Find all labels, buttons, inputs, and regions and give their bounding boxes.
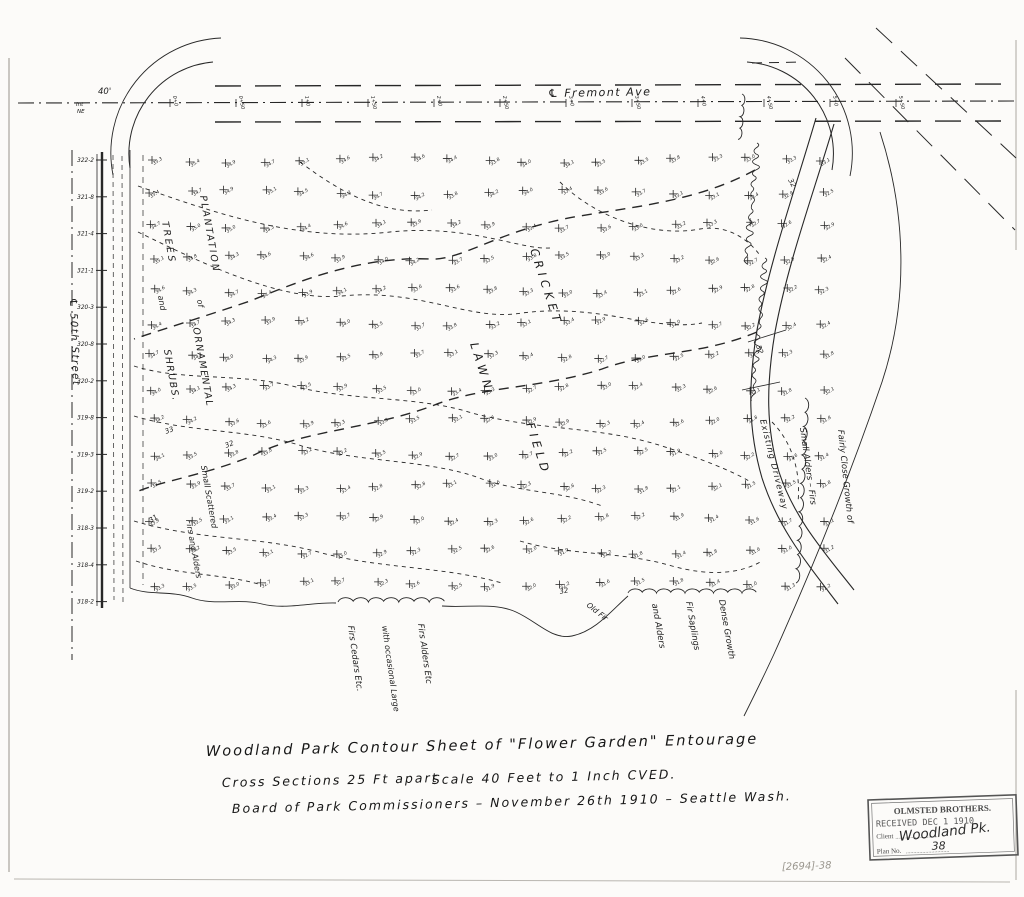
elevation-figure: 32.9 — [377, 549, 389, 560]
elevation-figure: 33.5 — [226, 546, 238, 557]
elevation-figure: 33.9 — [485, 221, 497, 232]
elevation-figure: 32.5 — [823, 188, 835, 199]
elevation-figure: 34.2 — [376, 285, 388, 296]
corner-note-int: Int — [76, 102, 84, 108]
driveway-edge-west — [751, 118, 838, 604]
elevation-figure: 32.8 — [415, 481, 427, 492]
contour-label-33: 33 — [164, 425, 175, 436]
elevation-figure: 33.0 — [411, 387, 423, 398]
elevation-figure: 33.7 — [452, 256, 464, 267]
section-label: 318-4 — [77, 563, 94, 569]
elevation-figure: 34.7 — [229, 289, 241, 300]
elevation-figure: 31.8 — [820, 479, 832, 490]
fremont-ave: ℄ Fremont Ave 40' Int NE — [18, 62, 1015, 122]
elevation-figure: 34.2 — [451, 219, 463, 230]
elevation-figure: 34.1 — [376, 219, 388, 230]
elevation-figure: 34.2 — [415, 192, 427, 203]
station-label: 3+0 — [567, 95, 575, 106]
elevation-figure: 31.8 — [781, 387, 793, 398]
elevation-figure: 33.5 — [409, 415, 421, 426]
elevation-figure: 33.0 — [337, 550, 349, 561]
elevation-figure: 34.6 — [337, 221, 349, 232]
elevation-figure: 32.0 — [709, 416, 721, 427]
elevation-figure: 32.7 — [449, 452, 461, 463]
elevation-figure: 32.4 — [786, 322, 798, 333]
elevation-figure: 32.2 — [635, 512, 647, 523]
station-label: 3+50 — [633, 95, 641, 110]
elevation-figure: 32.5 — [638, 446, 650, 457]
elevation-figure: 33.2 — [337, 447, 349, 458]
elevation-figure: 32.4 — [634, 420, 646, 431]
elevation-figure: 34.6 — [340, 155, 352, 166]
contour-heavy-31 — [134, 332, 757, 493]
fremont-south-edge — [215, 121, 1002, 122]
elevation-figure: 32.0 — [527, 545, 539, 556]
elevation-figure: 34.9 — [223, 186, 235, 197]
elevation-figure: 35.4 — [149, 189, 161, 200]
elevation-figure: 35.0 — [225, 224, 237, 235]
elevation-figure: 35.0 — [190, 222, 202, 233]
elevation-figure: 34.3 — [266, 355, 278, 366]
elevation-figure: 33.3 — [712, 153, 724, 164]
map-drawing: ℄ Fremont Ave 40' Int NE ℄ 50th Street 3… — [0, 0, 1024, 897]
elevation-figure: 32.9 — [595, 316, 607, 327]
elevation-figure: 32.0 — [526, 582, 538, 593]
elevation-figure: 33.5 — [151, 479, 163, 490]
elevation-figure: 32.7 — [301, 550, 313, 561]
elevation-figure: 33.4 — [526, 223, 538, 234]
section-label: 319-3 — [77, 452, 94, 458]
corner-arc-nw-outer — [111, 38, 221, 175]
existing-driveway — [742, 118, 854, 604]
label-old-fir: Old Fir — [585, 600, 611, 623]
elevation-figure: 33.3 — [298, 485, 310, 496]
label-existing-driveway: Existing Driveway — [757, 418, 789, 511]
corner-arc-ne-outer — [740, 38, 852, 176]
elevation-figure: 33.7 — [635, 188, 647, 199]
elevation-figure: 33.7 — [559, 224, 571, 235]
label-of: of — [195, 299, 205, 309]
elevation-figure: 32.3 — [676, 383, 688, 394]
elevation-figure: 31.8 — [638, 485, 650, 496]
label-plantation: PLANTATION — [197, 195, 221, 274]
elevation-figure: 33.6 — [229, 418, 241, 429]
elevation-figure: 33.2 — [490, 321, 502, 332]
elevation-figure: 33.3 — [786, 155, 798, 166]
elevation-figure: 33.6 — [412, 284, 424, 295]
elevation-figure: 33.0 — [635, 354, 647, 365]
elevation-figure: 32.8 — [372, 483, 384, 494]
elevation-figure: 32.9 — [712, 284, 724, 295]
elevation-figure: 35.1 — [154, 255, 166, 266]
elevation-figure: 33.5 — [376, 449, 388, 460]
section-label: 320-3 — [77, 305, 94, 311]
elevation-figure: 33.4 — [523, 352, 535, 363]
elevation-figure: 33.1 — [521, 319, 533, 330]
elevation-figure: 33.4 — [597, 289, 609, 300]
elevation-figure: 33.1 — [223, 515, 235, 526]
section-label: 321-4 — [77, 232, 94, 238]
ne-diagonal-dash-2 — [876, 28, 1016, 158]
elevation-figure: 31.8 — [673, 577, 685, 588]
elevation-figure: 31.5 — [745, 480, 757, 491]
elevation-figure: 31.8 — [599, 513, 611, 524]
label-and-alders: and Alders — [649, 603, 667, 650]
elevation-figure: 31.3 — [785, 582, 797, 593]
elevation-figure: 33.3 — [634, 252, 646, 263]
elevation-figure: 34.0 — [523, 187, 535, 198]
elevation-figure: 33.7 — [414, 349, 426, 360]
fremont-centerline — [18, 101, 1014, 103]
elevation-figure: 32.6 — [709, 256, 721, 267]
elevation-figure: 33.0 — [633, 222, 645, 233]
section-label: 319-8 — [77, 416, 94, 422]
section-label: 322-2 — [77, 158, 94, 164]
elevation-figure: 34.3 — [186, 287, 198, 298]
elevation-figure: 32.6 — [523, 517, 535, 528]
elevation-figure: 34.0 — [151, 387, 163, 398]
elevation-figure: 32.7 — [260, 579, 272, 590]
elevation-figure: 32.2 — [787, 284, 799, 295]
elevation-figure: 33.6 — [261, 419, 273, 430]
elevation-figure: 33.5 — [638, 156, 650, 167]
sheet-edge-bottom — [14, 879, 1010, 882]
elevation-figure: 33.3 — [488, 350, 500, 361]
elevation-figure: 33.5 — [186, 583, 198, 594]
elevation-figure: 32.1 — [670, 484, 682, 495]
elevation-figure: 33.3 — [154, 583, 166, 594]
elevation-figure: 34.2 — [154, 414, 166, 425]
station-label: 5+50 — [897, 95, 905, 110]
elevation-figure: 34.0 — [378, 256, 390, 267]
stamp-org: OLMSTED BROTHERS. — [894, 803, 992, 816]
elevation-figure: 32.3 — [600, 420, 612, 431]
elevation-figure: 32.9 — [559, 418, 571, 429]
elevation-figure: 33.1 — [378, 417, 390, 428]
elevation-figure: 33.8 — [262, 447, 274, 458]
contour-number-labels: 33 32 31 32 32 32 — [148, 177, 798, 596]
elevation-figure: 31.8 — [824, 350, 836, 361]
elevation-figure: 32.7 — [712, 321, 724, 332]
elevation-figure: 32.7 — [335, 577, 347, 588]
elevation-figure: 33.2 — [674, 254, 686, 265]
elevation-figure: 34.0 — [521, 158, 533, 169]
elevation-figure: 34.3 — [225, 317, 237, 328]
elevation-figure: 32.1 — [712, 482, 724, 493]
elevation-figure: 32.3 — [595, 484, 607, 495]
map-title: Woodland Park Contour Sheet of "Flower G… — [206, 731, 759, 760]
tree-line-scallop — [738, 94, 745, 140]
elevation-figure: 32.7 — [340, 512, 352, 523]
elevation-figure: 32.2 — [785, 414, 797, 425]
elevation-figure: 34.0 — [223, 353, 235, 364]
elevation-figure: 32.3 — [818, 286, 830, 297]
elevation-figure: 32.6 — [674, 418, 686, 429]
elevation-figure: 33.1 — [263, 549, 275, 560]
elevation-figure: 32.9 — [824, 221, 836, 232]
elevation-figure: 33.3 — [335, 419, 347, 430]
elevation-figure: 33.1 — [452, 414, 464, 425]
elevation-figure: 32.5 — [673, 352, 685, 363]
cross-sections-note: Cross Sections 25 Ft apart — [222, 770, 439, 790]
elevation-figure: 33.3 — [707, 219, 719, 230]
elevation-figure: 32.8 — [744, 283, 756, 294]
elevation-figure: 31.4 — [818, 452, 830, 463]
elevation-figure: 33.1 — [265, 484, 277, 495]
elevation-figure: 35.4 — [189, 158, 201, 169]
elevation-figure: 33.0 — [670, 319, 682, 330]
station-label: 2+0 — [435, 95, 443, 106]
elevation-figure: 33.5 — [187, 451, 199, 462]
elevation-figure: 31.6 — [787, 452, 799, 463]
width-40-label: 40' — [98, 87, 111, 97]
elevation-figure: 31.9 — [674, 512, 686, 523]
elevation-figure: 31.0 — [782, 545, 794, 556]
contour — [560, 182, 759, 254]
label-small-alders-firs: Small Alders – Firs — [797, 427, 818, 506]
section-label: 318-3 — [77, 526, 94, 532]
elevation-figure: 34.1 — [190, 385, 202, 396]
elevation-figure: 34.8 — [187, 253, 199, 264]
elevation-figure: 33.2 — [676, 220, 688, 231]
elevation-figure: 32.5 — [452, 545, 464, 556]
walk-edge-2 — [122, 156, 123, 602]
elevation-figure: 32.8 — [562, 354, 574, 365]
elevation-figure: 33.8 — [228, 449, 240, 460]
elevation-figure: 34.5 — [298, 187, 310, 198]
elevation-figure: 34.0 — [340, 318, 352, 329]
elevation-figure: 33.1 — [304, 577, 316, 588]
elevation-figure: 33.5 — [373, 320, 385, 331]
title-block: Woodland Park Contour Sheet of "Flower G… — [206, 731, 792, 816]
elevation-figure: 33.9 — [302, 289, 314, 300]
corner-curb-arcs — [111, 28, 1016, 230]
elevation-figure: 33.1 — [673, 190, 685, 201]
elevation-figure: 32.6 — [707, 385, 719, 396]
elevation-figure: 32.6 — [670, 286, 682, 297]
elevation-figure: 34.7 — [149, 349, 161, 360]
elevation-figure: 33.7 — [263, 381, 275, 392]
elevation-figure: 32.7 — [526, 385, 538, 396]
elevation-figure: 33.9 — [298, 354, 310, 365]
elevation-figure: 32.8 — [558, 383, 570, 394]
elevation-figure: 33.0 — [414, 516, 426, 527]
label-dense-growth: Dense Growth — [716, 599, 736, 660]
elevation-figure: 32.6 — [638, 317, 650, 328]
elevation-figure: 34.1 — [154, 452, 166, 463]
elevation-figure: 32.6 — [484, 544, 496, 555]
elevation-figure: 31.4 — [710, 578, 722, 589]
elevation-figure: 33.8 — [487, 285, 499, 296]
elevation-figure: 31.6 — [600, 578, 612, 589]
elevation-figure: 33.0 — [600, 251, 612, 262]
contour-label-32a: 32 — [224, 439, 236, 450]
walk-edge-1 — [113, 155, 114, 600]
tree-line-scallop — [338, 598, 444, 602]
label-with-occasional: with occasional Large — [380, 625, 401, 712]
elevation-figure: 34.1 — [564, 159, 576, 170]
elevation-figure: 31.4 — [708, 514, 720, 525]
tree-line-scallop — [628, 589, 756, 593]
elevation-figure: 32.3 — [782, 349, 794, 360]
elevation-figure: 32.2 — [709, 350, 721, 361]
elevation-figure: 33.8 — [670, 154, 682, 165]
elevation-figure: 33.3 — [523, 287, 535, 298]
stamp-plan-label: Plan No. — [877, 847, 902, 856]
elevation-figure: 34.9 — [225, 159, 237, 170]
station-label: 1+0 — [303, 95, 311, 106]
elevation-figure: 32.2 — [601, 549, 613, 560]
label-fairly-close: Fairly Close Growth of — [835, 429, 855, 525]
corner-note-ne: NE — [77, 109, 85, 115]
elevation-figure: 33.7 — [415, 322, 427, 333]
elevation-figure: 32.4 — [632, 382, 644, 393]
elevation-figure: 34.6 — [261, 251, 273, 262]
scale-note: Scale 40 Feet to 1 Inch CVED. — [432, 766, 677, 787]
elevation-figure: 33.0 — [601, 381, 613, 392]
elevation-figure: 33.9 — [337, 383, 349, 394]
elevation-figure: 32.2 — [744, 452, 756, 463]
elevation-figure: 34.2 — [187, 416, 199, 427]
elevation-figure: 33.1 — [446, 479, 458, 490]
stamp-plan-handwritten: 38 — [931, 839, 945, 852]
elevation-figure: 34.6 — [415, 153, 427, 164]
elevation-figure: 31.8 — [632, 550, 644, 561]
elevation-figure: 32.2 — [745, 322, 757, 333]
label-field: FIELD — [523, 421, 553, 478]
elevation-figure: 33.9 — [335, 254, 347, 265]
elevation-figure: 33.1 — [448, 349, 460, 360]
elevation-figure: 31.9 — [484, 583, 496, 594]
hedge-scribble — [751, 258, 767, 401]
elevation-figure: 33.5 — [559, 251, 571, 262]
driveway-cross-ticks — [742, 330, 786, 390]
contour — [300, 162, 432, 211]
corner-arc-ne-inner — [747, 62, 833, 170]
elevation-figure: 34.3 — [229, 251, 241, 262]
label-fir-saplings: Fir Saplings — [683, 601, 702, 652]
elevation-figure: 32.6 — [490, 479, 502, 490]
elevation-figure: 34.6 — [303, 252, 315, 263]
elevation-figure: 31.5 — [634, 577, 646, 588]
elevation-figure: 32.1 — [824, 386, 836, 397]
label-and: and — [156, 295, 168, 312]
elevation-figure: 33.6 — [601, 224, 613, 235]
elevation-figure: 33.8 — [447, 322, 459, 333]
elevation-figure: 34.7 — [265, 159, 277, 170]
vegetation-lines — [338, 94, 809, 602]
elevation-figure: 33.9 — [190, 480, 202, 491]
elevation-figure: 31.6 — [750, 546, 762, 557]
elevation-figure: 33.6 — [449, 284, 461, 295]
elevation-figure: 33.8 — [447, 191, 459, 202]
elevation-figure: 34.3 — [341, 190, 353, 201]
elevation-figure: 31.5 — [786, 479, 798, 490]
elevation-figure: 33.4 — [562, 186, 574, 197]
elevation-figure: 33.9 — [265, 316, 277, 327]
elevation-figure: 33.0 — [229, 581, 241, 592]
label-firs-cedars: Firs Cedars Etc. — [345, 625, 364, 692]
elevation-figure: 34.3 — [226, 383, 238, 394]
elevation-figure: 32.7 — [748, 257, 760, 268]
elevation-figure: 31.8 — [821, 415, 833, 426]
elevation-figure: 33.5 — [595, 158, 607, 169]
commissioners-date-line: Board of Park Commissioners – November 2… — [232, 788, 792, 816]
corner-arc-nw-inner — [129, 62, 213, 168]
elevation-figure: 33.3 — [151, 544, 163, 555]
elevation-figure: 33.1 — [709, 191, 721, 202]
station-label: 2+50 — [501, 95, 509, 110]
elevation-figure: 35.3 — [152, 156, 164, 167]
elevation-figure: 32.0 — [713, 450, 725, 461]
elevation-figure: 33.8 — [489, 157, 501, 168]
elevation-figure: 31.8 — [707, 548, 719, 559]
elevation-figure: 33.0 — [487, 452, 499, 463]
elevation-figure: 34.2 — [373, 153, 385, 164]
elevation-figure: 32.9 — [412, 451, 424, 462]
label-lawn: LAWN — [467, 341, 496, 395]
station-label: 1+50 — [369, 95, 377, 110]
olmsted-stamp: OLMSTED BROTHERS. RECEIVED DEC 1 1910 Cl… — [868, 795, 1018, 860]
elevation-figure: 32.4 — [820, 320, 832, 331]
elevation-figure: 34.7 — [372, 191, 384, 202]
elevation-figure: 32.7 — [750, 218, 762, 229]
section-label: 319-2 — [77, 489, 94, 495]
elevation-figure: 32.2 — [561, 514, 573, 525]
elevation-figure: 31.6 — [749, 516, 761, 527]
elevation-figure: 34.4 — [447, 154, 459, 165]
elevation-figure: 35.1 — [266, 186, 278, 197]
station-label: 0+0 — [171, 95, 179, 106]
elevation-figure: 33.1 — [637, 288, 649, 299]
elevation-figure: 33.5 — [484, 255, 496, 266]
elevation-figure: 32.6 — [409, 580, 421, 591]
elevation-figure: 32.3 — [488, 518, 500, 529]
elevation-figure: 33.4 — [340, 485, 352, 496]
elevation-figure: 33.0 — [562, 289, 574, 300]
elevation-figure: 33.5 — [376, 385, 388, 396]
elevation-figure: 33.9 — [411, 218, 423, 229]
elevation-figure: 35.1 — [299, 157, 311, 168]
elevation-figure: 33.9 — [304, 420, 316, 431]
elevation-figure: 34.2 — [488, 189, 500, 200]
station-label: 0+50 — [237, 95, 245, 110]
label-ornamental: ORNAMENTAL — [190, 327, 215, 408]
map-sheet: ℄ Fremont Ave 40' Int NE ℄ 50th Street 3… — [0, 0, 1024, 897]
section-label: 320-2 — [77, 379, 94, 385]
stamp-client-label: Client — [876, 832, 893, 841]
fremont-dash-stub — [752, 62, 802, 63]
elevation-figure: 32.7 — [598, 355, 610, 366]
elevation-figure: 33.7 — [225, 482, 237, 493]
elevation-figure: 32.9 — [373, 513, 385, 524]
station-label: 5+0 — [831, 95, 839, 106]
elevation-figure: 32.4 — [448, 517, 460, 528]
section-label: 320-8 — [77, 342, 94, 348]
fiftieth-street: ℄ 50th Street — [67, 150, 143, 660]
section-label: 321-8 — [77, 195, 94, 201]
pencil-catalog-note: [2694]-38 — [782, 860, 832, 873]
elevation-figure: 32.1 — [750, 387, 762, 398]
elevation-figure: 33.8 — [373, 351, 385, 362]
elevation-figure: 33.4 — [266, 513, 278, 524]
section-label: 321-1 — [77, 268, 94, 274]
elevation-figure: 33.6 — [598, 186, 610, 197]
elevation-figure: 33.3 — [298, 512, 310, 523]
elevation-figure: 32.4 — [821, 254, 833, 265]
elevation-figure: 32.5 — [596, 447, 608, 458]
elevation-figure: 32.2 — [563, 448, 575, 459]
